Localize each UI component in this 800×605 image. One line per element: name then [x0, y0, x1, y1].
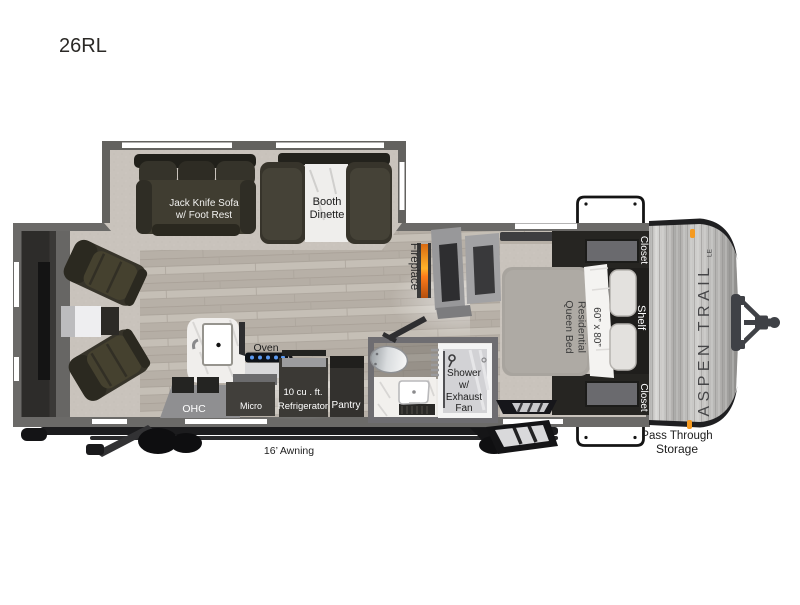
- svg-text:LE: LE: [707, 248, 714, 257]
- svg-text:Jack Knife Sofa: Jack Knife Sofa: [169, 198, 239, 209]
- svg-text:ASPEN TRAIL: ASPEN TRAIL: [696, 263, 713, 416]
- svg-text:26RL: 26RL: [59, 35, 107, 57]
- svg-text:Closet: Closet: [638, 383, 649, 412]
- svg-text:Queen Bed: Queen Bed: [563, 300, 575, 353]
- svg-text:10 cu . ft.: 10 cu . ft.: [283, 387, 322, 398]
- svg-text:Fireplace: Fireplace: [408, 243, 420, 290]
- svg-text:16’ Awning: 16’ Awning: [264, 445, 314, 457]
- svg-text:Dinette: Dinette: [310, 209, 345, 221]
- svg-text:Oven: Oven: [253, 342, 278, 354]
- svg-text:Exhaust: Exhaust: [446, 392, 482, 403]
- svg-text:Shower: Shower: [447, 368, 482, 379]
- svg-text:w/: w/: [458, 380, 469, 391]
- svg-text:Booth: Booth: [313, 196, 342, 208]
- svg-text:60” x 80”: 60” x 80”: [591, 307, 602, 346]
- svg-text:Micro: Micro: [240, 401, 262, 411]
- svg-text:Closet: Closet: [638, 236, 649, 265]
- svg-text:Shelf: Shelf: [635, 305, 647, 331]
- svg-text:OHC: OHC: [182, 403, 206, 415]
- svg-text:Fan: Fan: [455, 403, 472, 414]
- svg-text:Pass Through: Pass Through: [641, 430, 712, 442]
- svg-text:Storage: Storage: [656, 442, 698, 456]
- svg-text:Pantry: Pantry: [332, 400, 361, 411]
- svg-text:w/ Foot Rest: w/ Foot Rest: [175, 210, 232, 221]
- svg-text:Residential: Residential: [576, 301, 588, 353]
- svg-text:Refrigerator: Refrigerator: [278, 401, 328, 412]
